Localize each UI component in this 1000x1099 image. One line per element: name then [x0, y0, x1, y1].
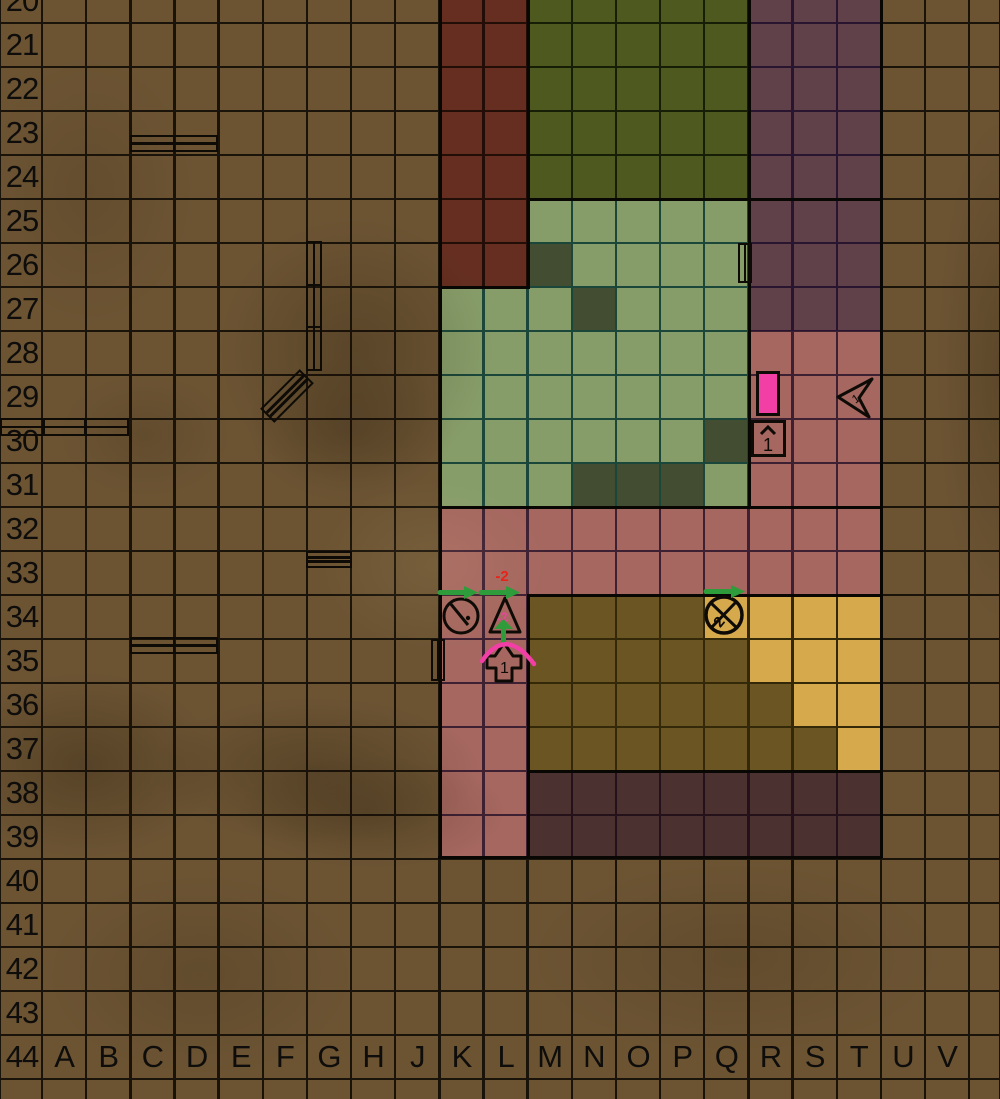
- cell-O40[interactable]: [617, 860, 659, 902]
- cell-N21[interactable]: [573, 24, 615, 66]
- cell-F43[interactable]: [264, 992, 306, 1034]
- cell-G40[interactable]: [308, 860, 350, 902]
- cell-S35[interactable]: [794, 640, 836, 682]
- cell-T38[interactable]: [838, 772, 880, 814]
- door-g33[interactable]: [306, 551, 352, 568]
- cell-H24[interactable]: [352, 156, 394, 198]
- cell-J26[interactable]: [396, 244, 438, 286]
- cell-L32[interactable]: [485, 508, 527, 550]
- door-q26[interactable]: [738, 243, 752, 283]
- cell-A36[interactable]: [43, 684, 85, 726]
- cell-V37[interactable]: [926, 728, 968, 770]
- cell-L31[interactable]: [485, 464, 527, 506]
- cell-G39[interactable]: [308, 816, 350, 858]
- cell-edge-35[interactable]: [970, 640, 998, 682]
- cell-C34[interactable]: [132, 596, 174, 638]
- crossed-2-marker-q34[interactable]: 2: [702, 593, 746, 637]
- cell-F22[interactable]: [264, 68, 306, 110]
- cell-A25[interactable]: [43, 200, 85, 242]
- cell-D37[interactable]: [176, 728, 218, 770]
- cell-edge-29[interactable]: [970, 376, 998, 418]
- cell-E33[interactable]: [220, 552, 262, 594]
- cell-C24[interactable]: [132, 156, 174, 198]
- cell-C29[interactable]: [132, 376, 174, 418]
- cell-T43[interactable]: [838, 992, 880, 1034]
- cell-H37[interactable]: [352, 728, 394, 770]
- cell-C37[interactable]: [132, 728, 174, 770]
- cell-T35[interactable]: [838, 640, 880, 682]
- cell-P33[interactable]: [661, 552, 703, 594]
- cell-U39[interactable]: [882, 816, 924, 858]
- cell-O29[interactable]: [617, 376, 659, 418]
- cell-N32[interactable]: [573, 508, 615, 550]
- door-j35[interactable]: [431, 639, 445, 681]
- cell-T26[interactable]: [838, 244, 880, 286]
- cell-H33[interactable]: [352, 552, 394, 594]
- cell-F41[interactable]: [264, 904, 306, 946]
- cell-N31[interactable]: [573, 464, 615, 506]
- cell-M28[interactable]: [529, 332, 571, 374]
- cell-K40[interactable]: [441, 860, 483, 902]
- cell-N34[interactable]: [573, 596, 615, 638]
- cell-U23[interactable]: [882, 112, 924, 154]
- cell-E43[interactable]: [220, 992, 262, 1034]
- cell-N37[interactable]: [573, 728, 615, 770]
- cell-E42[interactable]: [220, 948, 262, 990]
- cell-R22[interactable]: [750, 68, 792, 110]
- cell-Q38[interactable]: [705, 772, 747, 814]
- cell-K41[interactable]: [441, 904, 483, 946]
- cell-B40[interactable]: [87, 860, 129, 902]
- cell-R38[interactable]: [750, 772, 792, 814]
- cell-K42[interactable]: [441, 948, 483, 990]
- cell-E39[interactable]: [220, 816, 262, 858]
- cell-H27[interactable]: [352, 288, 394, 330]
- cell-K20[interactable]: [441, 0, 483, 22]
- cell-D34[interactable]: [176, 596, 218, 638]
- cell-L27[interactable]: [485, 288, 527, 330]
- cell-M38[interactable]: [529, 772, 571, 814]
- cell-V20[interactable]: [926, 0, 968, 22]
- cell-B38[interactable]: [87, 772, 129, 814]
- cell-E37[interactable]: [220, 728, 262, 770]
- cell-N28[interactable]: [573, 332, 615, 374]
- cell-O30[interactable]: [617, 420, 659, 462]
- cell-J29[interactable]: [396, 376, 438, 418]
- cell-V32[interactable]: [926, 508, 968, 550]
- cell-K36[interactable]: [441, 684, 483, 726]
- cell-A32[interactable]: [43, 508, 85, 550]
- cell-E40[interactable]: [220, 860, 262, 902]
- cell-B41[interactable]: [87, 904, 129, 946]
- cell-A42[interactable]: [43, 948, 85, 990]
- cell-V29[interactable]: [926, 376, 968, 418]
- cell-B42[interactable]: [87, 948, 129, 990]
- cell-A45[interactable]: [43, 1080, 85, 1099]
- cell-M24[interactable]: [529, 156, 571, 198]
- cell-O37[interactable]: [617, 728, 659, 770]
- cell-C28[interactable]: [132, 332, 174, 374]
- cell-P34[interactable]: [661, 596, 703, 638]
- cell-L40[interactable]: [485, 860, 527, 902]
- cell-edge-40[interactable]: [970, 860, 998, 902]
- cell-O24[interactable]: [617, 156, 659, 198]
- cell-E25[interactable]: [220, 200, 262, 242]
- cell-edge-42[interactable]: [970, 948, 998, 990]
- cell-L37[interactable]: [485, 728, 527, 770]
- cell-P37[interactable]: [661, 728, 703, 770]
- cell-T20[interactable]: [838, 0, 880, 22]
- cell-C22[interactable]: [132, 68, 174, 110]
- cell-N39[interactable]: [573, 816, 615, 858]
- cell-P23[interactable]: [661, 112, 703, 154]
- cell-U26[interactable]: [882, 244, 924, 286]
- cell-H41[interactable]: [352, 904, 394, 946]
- cell-S33[interactable]: [794, 552, 836, 594]
- cell-L45[interactable]: [485, 1080, 527, 1099]
- cell-F37[interactable]: [264, 728, 306, 770]
- cell-B45[interactable]: [87, 1080, 129, 1099]
- cell-H40[interactable]: [352, 860, 394, 902]
- cell-B29[interactable]: [87, 376, 129, 418]
- cell-F28[interactable]: [264, 332, 306, 374]
- cell-J32[interactable]: [396, 508, 438, 550]
- cell-A33[interactable]: [43, 552, 85, 594]
- cell-F45[interactable]: [264, 1080, 306, 1099]
- cell-S42[interactable]: [794, 948, 836, 990]
- cell-L39[interactable]: [485, 816, 527, 858]
- cell-V36[interactable]: [926, 684, 968, 726]
- cell-J28[interactable]: [396, 332, 438, 374]
- cell-H31[interactable]: [352, 464, 394, 506]
- cell-B21[interactable]: [87, 24, 129, 66]
- cell-H35[interactable]: [352, 640, 394, 682]
- cell-P20[interactable]: [661, 0, 703, 22]
- cell-G36[interactable]: [308, 684, 350, 726]
- cell-D43[interactable]: [176, 992, 218, 1034]
- cell-P21[interactable]: [661, 24, 703, 66]
- cell-O34[interactable]: [617, 596, 659, 638]
- cell-Q32[interactable]: [705, 508, 747, 550]
- cell-N45[interactable]: [573, 1080, 615, 1099]
- cell-A37[interactable]: [43, 728, 85, 770]
- cell-S21[interactable]: [794, 24, 836, 66]
- cell-L21[interactable]: [485, 24, 527, 66]
- cell-M23[interactable]: [529, 112, 571, 154]
- cell-N20[interactable]: [573, 0, 615, 22]
- cell-F20[interactable]: [264, 0, 306, 22]
- cell-C38[interactable]: [132, 772, 174, 814]
- cell-Q29[interactable]: [705, 376, 747, 418]
- up-1-marker-r30[interactable]: 1: [751, 420, 786, 457]
- cell-T40[interactable]: [838, 860, 880, 902]
- cell-M45[interactable]: [529, 1080, 571, 1099]
- cell-N42[interactable]: [573, 948, 615, 990]
- cell-P22[interactable]: [661, 68, 703, 110]
- cell-B43[interactable]: [87, 992, 129, 1034]
- cell-L20[interactable]: [485, 0, 527, 22]
- cell-G25[interactable]: [308, 200, 350, 242]
- cell-E35[interactable]: [220, 640, 262, 682]
- cell-V23[interactable]: [926, 112, 968, 154]
- cell-U30[interactable]: [882, 420, 924, 462]
- cell-U31[interactable]: [882, 464, 924, 506]
- cell-E22[interactable]: [220, 68, 262, 110]
- cell-edge-45[interactable]: [970, 1080, 998, 1099]
- cell-E31[interactable]: [220, 464, 262, 506]
- cell-D29[interactable]: [176, 376, 218, 418]
- cell-F24[interactable]: [264, 156, 306, 198]
- cell-C32[interactable]: [132, 508, 174, 550]
- cell-R42[interactable]: [750, 948, 792, 990]
- cell-K26[interactable]: [441, 244, 483, 286]
- cell-E30[interactable]: [220, 420, 262, 462]
- cell-R27[interactable]: [750, 288, 792, 330]
- cell-D42[interactable]: [176, 948, 218, 990]
- cell-edge-33[interactable]: [970, 552, 998, 594]
- cell-Q42[interactable]: [705, 948, 747, 990]
- cell-T42[interactable]: [838, 948, 880, 990]
- cell-S34[interactable]: [794, 596, 836, 638]
- cell-P45[interactable]: [661, 1080, 703, 1099]
- cell-T25[interactable]: [838, 200, 880, 242]
- cell-U41[interactable]: [882, 904, 924, 946]
- cell-J36[interactable]: [396, 684, 438, 726]
- cell-A27[interactable]: [43, 288, 85, 330]
- cell-J41[interactable]: [396, 904, 438, 946]
- cell-Q37[interactable]: [705, 728, 747, 770]
- cell-E32[interactable]: [220, 508, 262, 550]
- cell-Q20[interactable]: [705, 0, 747, 22]
- cell-K38[interactable]: [441, 772, 483, 814]
- cell-T37[interactable]: [838, 728, 880, 770]
- cell-F40[interactable]: [264, 860, 306, 902]
- cell-D32[interactable]: [176, 508, 218, 550]
- cell-A28[interactable]: [43, 332, 85, 374]
- cell-N25[interactable]: [573, 200, 615, 242]
- cell-H42[interactable]: [352, 948, 394, 990]
- cell-E23[interactable]: [220, 112, 262, 154]
- cell-G45[interactable]: [308, 1080, 350, 1099]
- cell-J43[interactable]: [396, 992, 438, 1034]
- cell-H25[interactable]: [352, 200, 394, 242]
- cell-D21[interactable]: [176, 24, 218, 66]
- cell-F39[interactable]: [264, 816, 306, 858]
- cell-R20[interactable]: [750, 0, 792, 22]
- cell-H26[interactable]: [352, 244, 394, 286]
- cell-T27[interactable]: [838, 288, 880, 330]
- cell-U43[interactable]: [882, 992, 924, 1034]
- cell-H38[interactable]: [352, 772, 394, 814]
- cell-M40[interactable]: [529, 860, 571, 902]
- cell-J38[interactable]: [396, 772, 438, 814]
- cell-R36[interactable]: [750, 684, 792, 726]
- cell-J22[interactable]: [396, 68, 438, 110]
- cell-J27[interactable]: [396, 288, 438, 330]
- cell-A22[interactable]: [43, 68, 85, 110]
- cell-B28[interactable]: [87, 332, 129, 374]
- cell-D24[interactable]: [176, 156, 218, 198]
- cell-T41[interactable]: [838, 904, 880, 946]
- cell-S23[interactable]: [794, 112, 836, 154]
- cell-R35[interactable]: [750, 640, 792, 682]
- cell-B34[interactable]: [87, 596, 129, 638]
- cell-J37[interactable]: [396, 728, 438, 770]
- cell-V25[interactable]: [926, 200, 968, 242]
- cell-P38[interactable]: [661, 772, 703, 814]
- cell-H39[interactable]: [352, 816, 394, 858]
- cell-U45[interactable]: [882, 1080, 924, 1099]
- cell-L28[interactable]: [485, 332, 527, 374]
- cell-V45[interactable]: [926, 1080, 968, 1099]
- cell-P43[interactable]: [661, 992, 703, 1034]
- cell-J34[interactable]: [396, 596, 438, 638]
- cell-R45[interactable]: [750, 1080, 792, 1099]
- cell-O32[interactable]: [617, 508, 659, 550]
- cell-P28[interactable]: [661, 332, 703, 374]
- cell-O27[interactable]: [617, 288, 659, 330]
- cell-O22[interactable]: [617, 68, 659, 110]
- cell-R41[interactable]: [750, 904, 792, 946]
- cell-D28[interactable]: [176, 332, 218, 374]
- cell-U21[interactable]: [882, 24, 924, 66]
- cell-U33[interactable]: [882, 552, 924, 594]
- cell-H36[interactable]: [352, 684, 394, 726]
- cell-D22[interactable]: [176, 68, 218, 110]
- cell-J45[interactable]: [396, 1080, 438, 1099]
- cell-Q22[interactable]: [705, 68, 747, 110]
- cell-K37[interactable]: [441, 728, 483, 770]
- cell-O21[interactable]: [617, 24, 659, 66]
- cell-E36[interactable]: [220, 684, 262, 726]
- cell-S29[interactable]: [794, 376, 836, 418]
- cell-V41[interactable]: [926, 904, 968, 946]
- cell-P30[interactable]: [661, 420, 703, 462]
- cell-R34[interactable]: [750, 596, 792, 638]
- cell-R25[interactable]: [750, 200, 792, 242]
- cell-A39[interactable]: [43, 816, 85, 858]
- cell-M22[interactable]: [529, 68, 571, 110]
- cell-S20[interactable]: [794, 0, 836, 22]
- cell-B26[interactable]: [87, 244, 129, 286]
- door-g26-g28[interactable]: [306, 241, 322, 371]
- cell-P24[interactable]: [661, 156, 703, 198]
- cell-F25[interactable]: [264, 200, 306, 242]
- cell-Q30[interactable]: [705, 420, 747, 462]
- cell-Q45[interactable]: [705, 1080, 747, 1099]
- cell-M26[interactable]: [529, 244, 571, 286]
- cell-G32[interactable]: [308, 508, 350, 550]
- cell-O45[interactable]: [617, 1080, 659, 1099]
- cell-T34[interactable]: [838, 596, 880, 638]
- cell-D20[interactable]: [176, 0, 218, 22]
- cell-edge-43[interactable]: [970, 992, 998, 1034]
- cell-K21[interactable]: [441, 24, 483, 66]
- cell-D39[interactable]: [176, 816, 218, 858]
- cell-M29[interactable]: [529, 376, 571, 418]
- cell-N29[interactable]: [573, 376, 615, 418]
- cell-K28[interactable]: [441, 332, 483, 374]
- cell-U35[interactable]: [882, 640, 924, 682]
- cell-V28[interactable]: [926, 332, 968, 374]
- cell-J20[interactable]: [396, 0, 438, 22]
- cell-edge-25[interactable]: [970, 200, 998, 242]
- cell-B24[interactable]: [87, 156, 129, 198]
- cell-E34[interactable]: [220, 596, 262, 638]
- cell-U25[interactable]: [882, 200, 924, 242]
- cell-P36[interactable]: [661, 684, 703, 726]
- cell-edge-36[interactable]: [970, 684, 998, 726]
- cell-A43[interactable]: [43, 992, 85, 1034]
- cell-A24[interactable]: [43, 156, 85, 198]
- cell-S39[interactable]: [794, 816, 836, 858]
- cell-num-45[interactable]: [1, 1080, 41, 1099]
- cell-O31[interactable]: [617, 464, 659, 506]
- cell-F32[interactable]: [264, 508, 306, 550]
- cell-K32[interactable]: [441, 508, 483, 550]
- cell-P41[interactable]: [661, 904, 703, 946]
- cell-V43[interactable]: [926, 992, 968, 1034]
- cell-U34[interactable]: [882, 596, 924, 638]
- cell-Q21[interactable]: [705, 24, 747, 66]
- cell-A31[interactable]: [43, 464, 85, 506]
- cell-S31[interactable]: [794, 464, 836, 506]
- cell-H21[interactable]: [352, 24, 394, 66]
- cell-V21[interactable]: [926, 24, 968, 66]
- cell-N41[interactable]: [573, 904, 615, 946]
- cell-O23[interactable]: [617, 112, 659, 154]
- cell-P25[interactable]: [661, 200, 703, 242]
- cell-G21[interactable]: [308, 24, 350, 66]
- cell-E29[interactable]: [220, 376, 262, 418]
- cell-G38[interactable]: [308, 772, 350, 814]
- cell-H23[interactable]: [352, 112, 394, 154]
- cell-O38[interactable]: [617, 772, 659, 814]
- cell-B25[interactable]: [87, 200, 129, 242]
- cell-E21[interactable]: [220, 24, 262, 66]
- cell-Q25[interactable]: [705, 200, 747, 242]
- cell-V30[interactable]: [926, 420, 968, 462]
- cell-C30[interactable]: [132, 420, 174, 462]
- cell-M33[interactable]: [529, 552, 571, 594]
- cell-F36[interactable]: [264, 684, 306, 726]
- cell-N24[interactable]: [573, 156, 615, 198]
- cell-J30[interactable]: [396, 420, 438, 462]
- cell-M39[interactable]: [529, 816, 571, 858]
- cell-U38[interactable]: [882, 772, 924, 814]
- cell-F21[interactable]: [264, 24, 306, 66]
- cell-B22[interactable]: [87, 68, 129, 110]
- cell-K43[interactable]: [441, 992, 483, 1034]
- cell-T28[interactable]: [838, 332, 880, 374]
- cell-L36[interactable]: [485, 684, 527, 726]
- cell-V27[interactable]: [926, 288, 968, 330]
- cell-S26[interactable]: [794, 244, 836, 286]
- cell-F33[interactable]: [264, 552, 306, 594]
- cell-edge-31[interactable]: [970, 464, 998, 506]
- cell-S37[interactable]: [794, 728, 836, 770]
- cell-U37[interactable]: [882, 728, 924, 770]
- cell-R43[interactable]: [750, 992, 792, 1034]
- cell-B35[interactable]: [87, 640, 129, 682]
- cell-J24[interactable]: [396, 156, 438, 198]
- cell-M42[interactable]: [529, 948, 571, 990]
- cell-E27[interactable]: [220, 288, 262, 330]
- cell-B36[interactable]: [87, 684, 129, 726]
- cell-O35[interactable]: [617, 640, 659, 682]
- cell-J25[interactable]: [396, 200, 438, 242]
- cell-P27[interactable]: [661, 288, 703, 330]
